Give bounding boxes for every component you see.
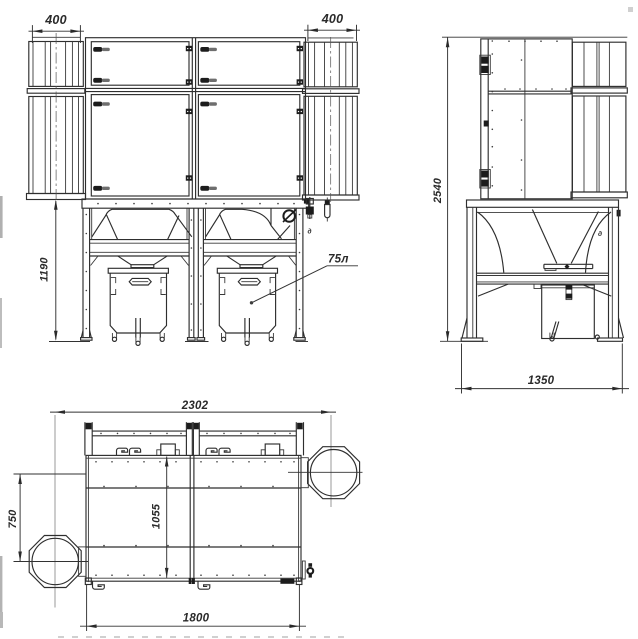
svg-text:д: д	[598, 230, 602, 238]
svg-text:1350: 1350	[528, 375, 555, 387]
svg-text:2302: 2302	[181, 400, 209, 412]
svg-text:2540: 2540	[432, 177, 444, 204]
svg-text:75л: 75л	[328, 254, 349, 266]
svg-text:1190: 1190	[38, 257, 50, 282]
svg-text:750: 750	[7, 509, 19, 529]
svg-text:400: 400	[44, 13, 66, 27]
svg-text:1055: 1055	[150, 503, 162, 529]
svg-text:д: д	[308, 228, 312, 236]
svg-text:1800: 1800	[183, 613, 210, 625]
svg-text:400: 400	[321, 12, 343, 26]
